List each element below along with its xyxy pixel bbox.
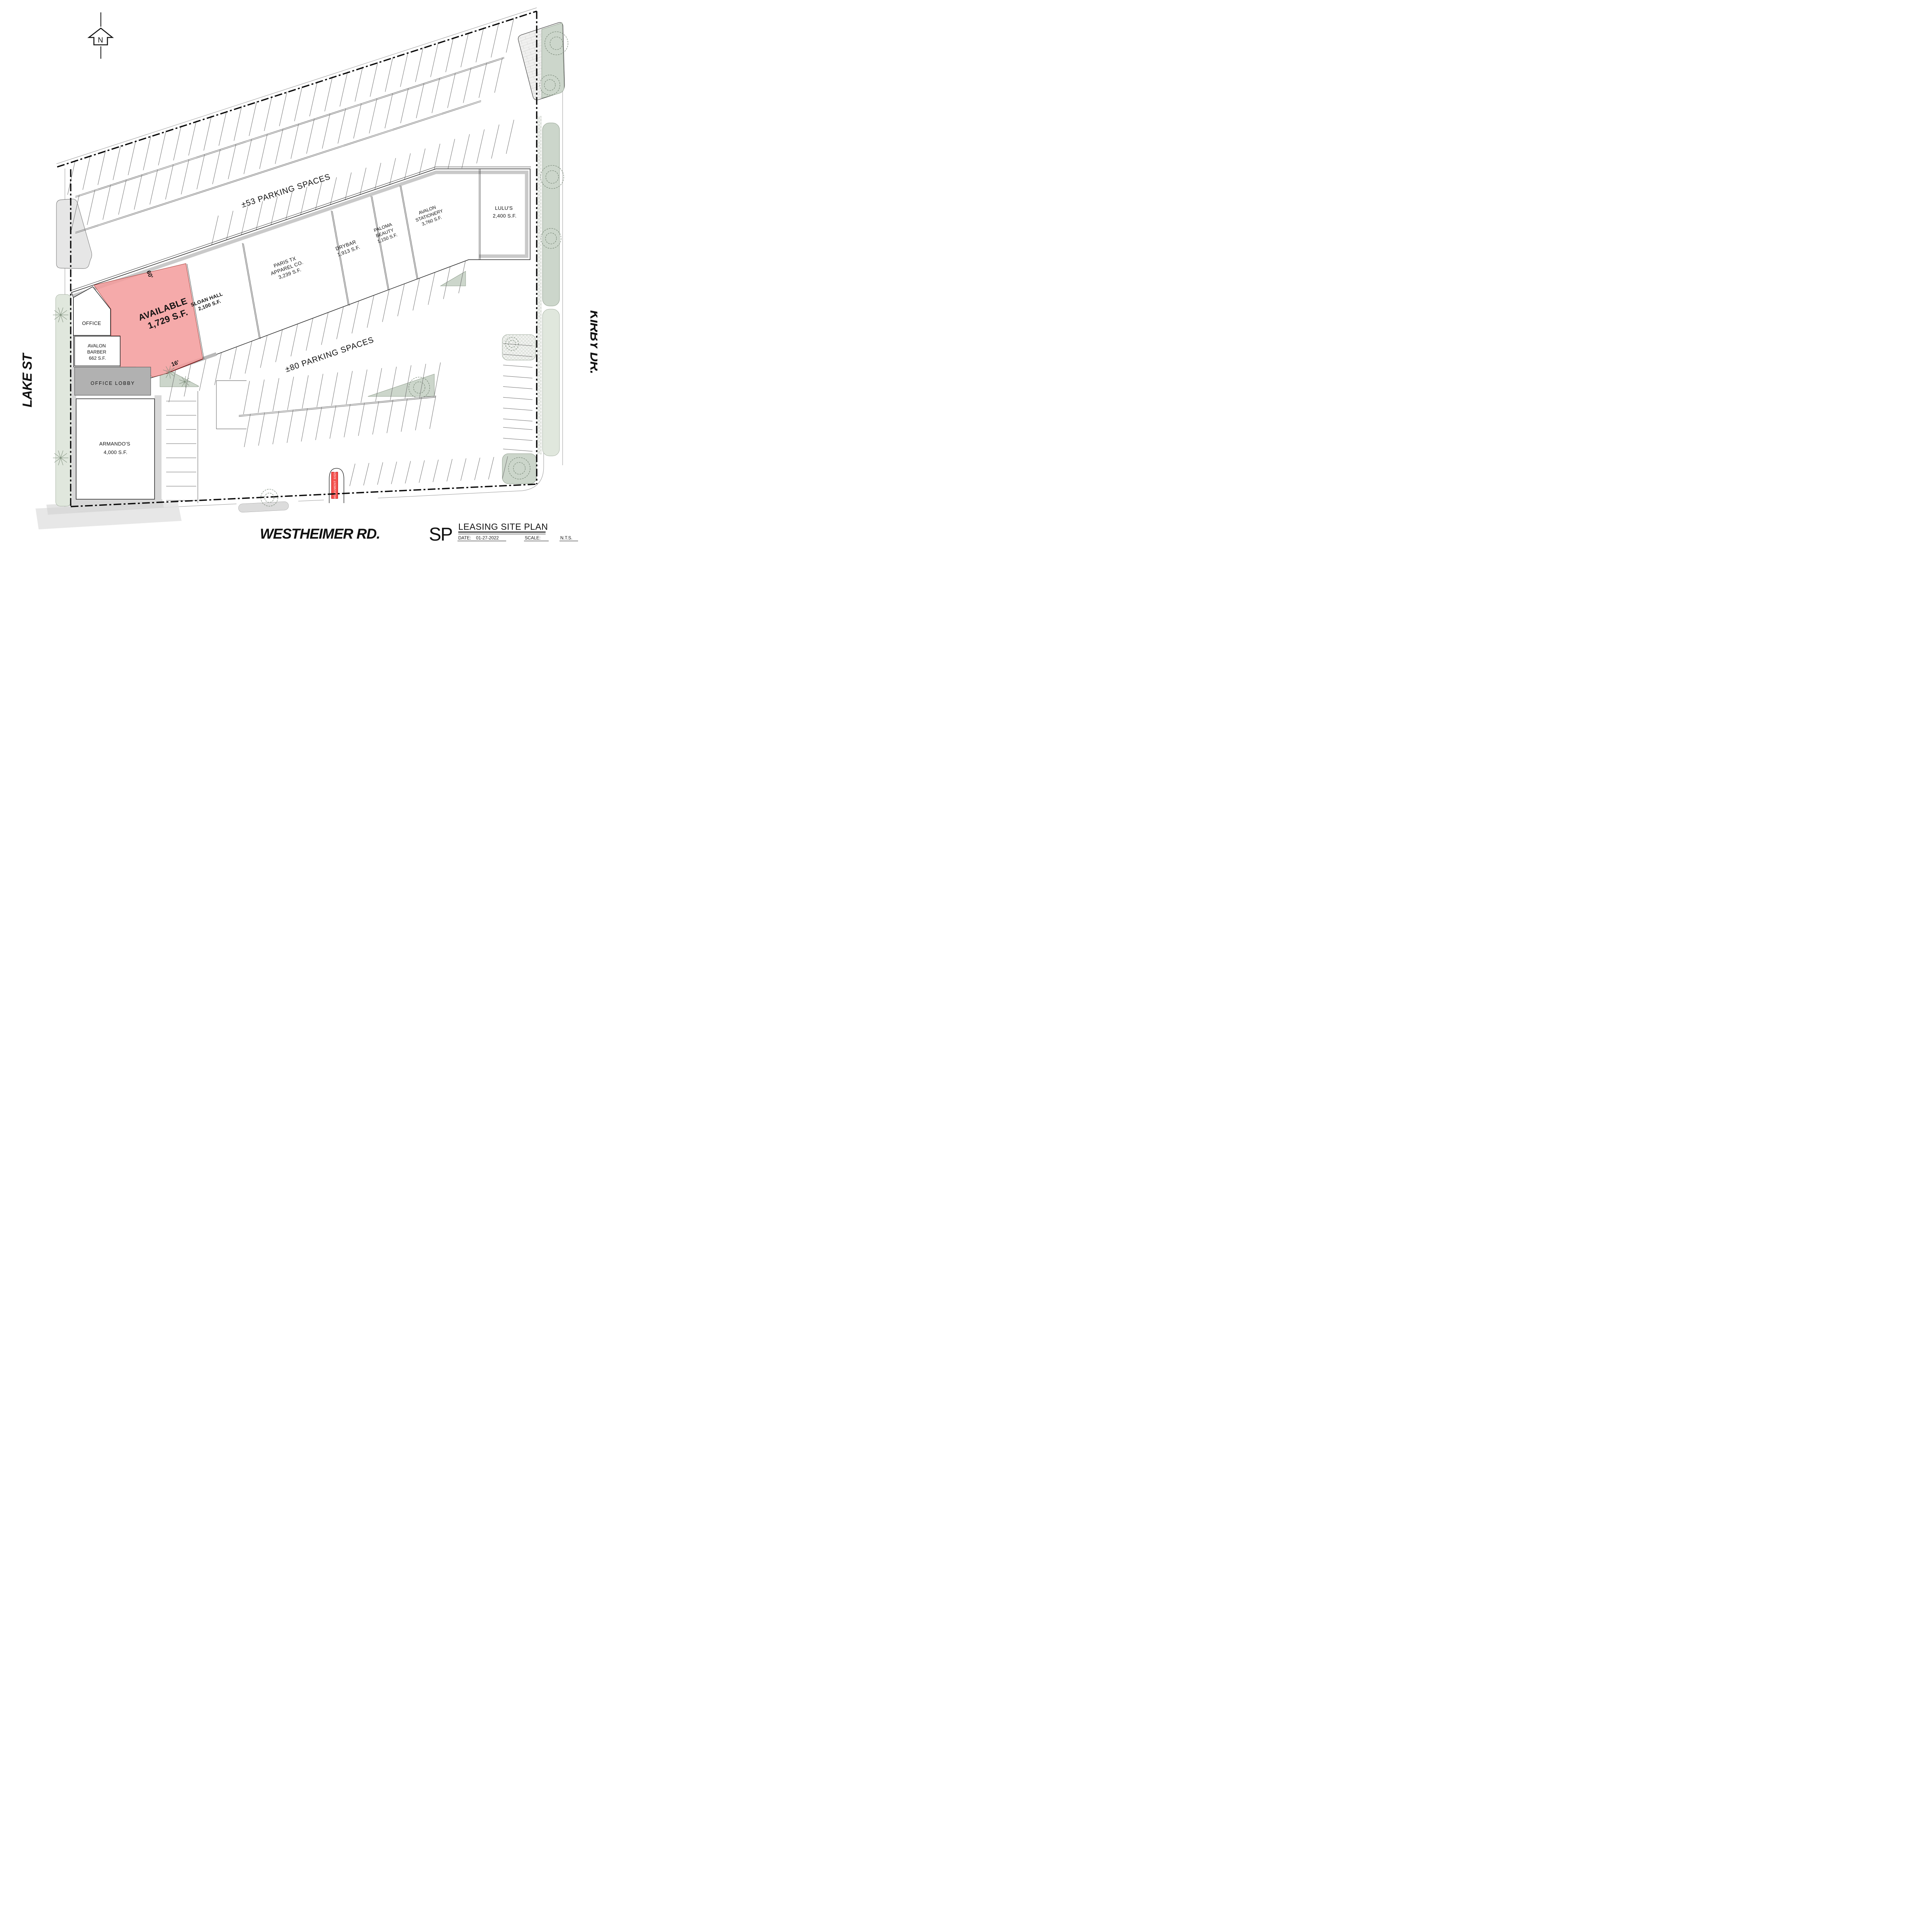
- street-label-westheimer-rd: WESTHEIMER RD.: [260, 526, 380, 542]
- kirby-landscape-strip-upper: [543, 123, 560, 306]
- center-row-end-cap: [216, 381, 247, 429]
- title-block: SP LEASING SITE PLAN DATE: 01-27-2022 SC…: [429, 522, 578, 544]
- ne-corner-landscape: [542, 23, 564, 98]
- north-label: N: [98, 36, 103, 44]
- parking-count-north: ±53 PARKING SPACES: [240, 172, 332, 209]
- site-plan-drawing: MONUMENT SIGN N OFFICE AVALON: [0, 0, 597, 544]
- monument-sign: MONUMENT SIGN: [329, 468, 344, 503]
- stall-col-west: [166, 401, 196, 500]
- center-drive-line: [239, 396, 436, 417]
- leasing-site-plan-page: MONUMENT SIGN N OFFICE AVALON: [0, 0, 597, 544]
- stall-row-south: [350, 456, 508, 486]
- east-wall-band: [155, 395, 162, 503]
- scale-value: N.T.S.: [560, 536, 572, 541]
- street-label-kirby-dr: KIRBY DR.: [587, 310, 597, 374]
- north-arrow: N: [89, 12, 112, 59]
- monument-sign-label: MONUMENT SIGN: [333, 471, 337, 499]
- scale-label: SCALE:: [525, 536, 541, 541]
- lake-st-driveway-apron: [56, 199, 92, 269]
- unit-armandos-area: [76, 399, 155, 499]
- parking-count-middle: ±80 PARKING SPACES: [284, 335, 375, 374]
- date-value: 01-27-2022: [476, 536, 499, 541]
- street-label-lake-st: LAKE ST: [20, 352, 35, 408]
- unit-label-avalon-barber: AVALON BARBER 662 S.F.: [87, 343, 108, 361]
- sheet-code: SP: [429, 524, 452, 544]
- stall-row-north-1: [68, 18, 514, 195]
- lake-st-landscape-strip: [56, 294, 71, 506]
- stall-col-east-2: [503, 427, 532, 451]
- north-street-curb: [56, 8, 537, 164]
- kirby-landscape-strip-lower: [543, 309, 560, 456]
- kirby-sidewalk-hatch: [537, 116, 542, 454]
- boundary-north: [57, 11, 537, 167]
- unit-label-office: OFFICE: [82, 320, 101, 326]
- driveway-median: [238, 502, 289, 513]
- date-label: DATE:: [458, 536, 471, 541]
- retail-building: [71, 167, 531, 507]
- sheet-title: LEASING SITE PLAN: [458, 522, 548, 532]
- unit-label-office-lobby: OFFICE LOBBY: [91, 381, 135, 386]
- stall-row-center-lower: [244, 396, 436, 447]
